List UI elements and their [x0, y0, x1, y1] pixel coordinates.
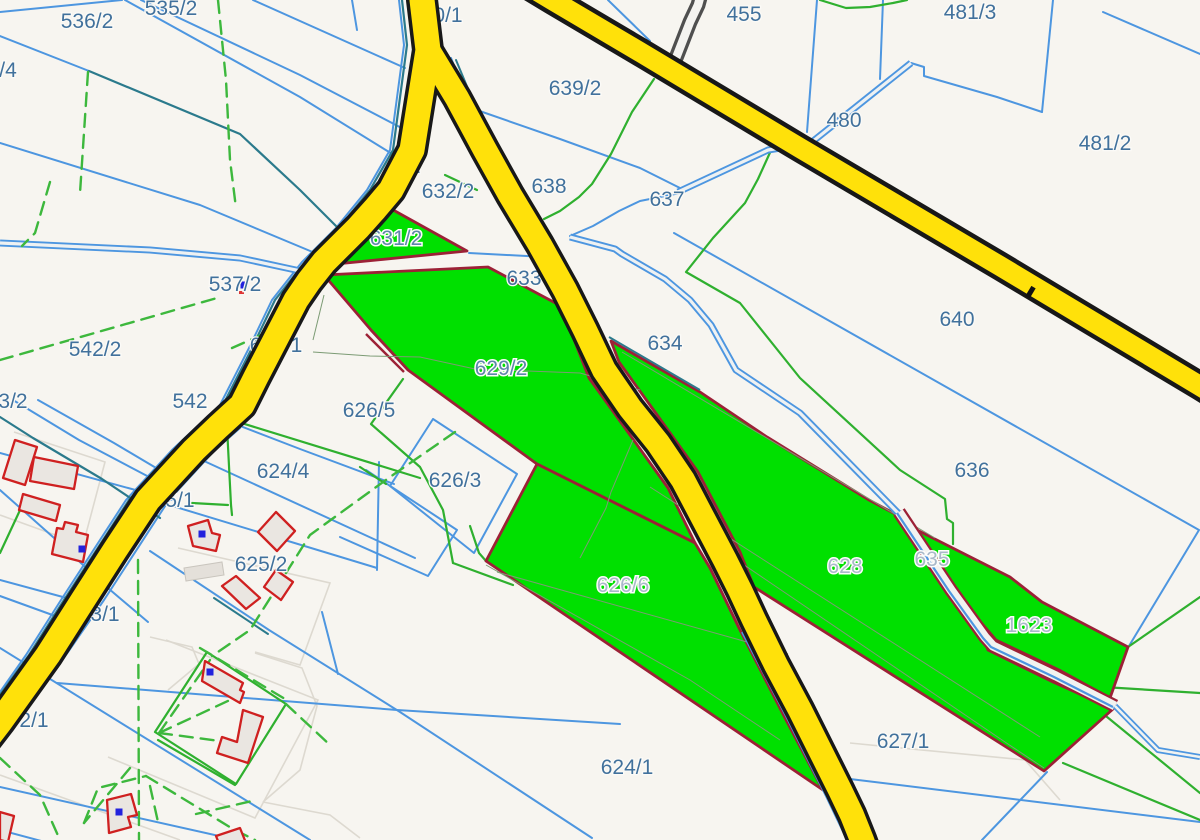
svg-text:640: 640 [939, 308, 974, 331]
svg-text:632/2: 632/2 [422, 180, 475, 203]
svg-text:629/2: 629/2 [475, 357, 528, 380]
svg-text:1623: 1623 [1006, 614, 1053, 637]
svg-text:635: 635 [914, 548, 949, 571]
svg-text:/4: /4 [0, 59, 17, 82]
svg-text:637: 637 [649, 188, 684, 211]
svg-text:481/2: 481/2 [1079, 132, 1132, 155]
svg-text:626/5: 626/5 [343, 399, 396, 422]
svg-text:626/3: 626/3 [429, 469, 482, 492]
svg-text:638: 638 [531, 175, 566, 198]
svg-text:542/2: 542/2 [69, 338, 122, 361]
svg-text:455: 455 [726, 3, 761, 26]
svg-text:536/2: 536/2 [61, 10, 114, 33]
svg-text:542: 542 [172, 390, 207, 413]
svg-text:631/2: 631/2 [370, 227, 423, 250]
svg-text:627/1: 627/1 [877, 730, 930, 753]
svg-text:535/2: 535/2 [145, 0, 198, 20]
svg-text:634: 634 [647, 332, 682, 355]
svg-text:3/2: 3/2 [0, 390, 28, 413]
svg-text:639/2: 639/2 [549, 77, 602, 100]
svg-text:480: 480 [826, 109, 861, 132]
svg-text:481/3: 481/3 [944, 1, 997, 24]
svg-text:628: 628 [827, 555, 862, 578]
svg-text:624/4: 624/4 [257, 460, 310, 483]
svg-text:537/2: 537/2 [209, 273, 262, 296]
svg-text:636: 636 [954, 459, 989, 482]
svg-text:624/1: 624/1 [601, 756, 654, 779]
svg-text:633: 633 [506, 267, 541, 290]
svg-text:626/6: 626/6 [597, 574, 650, 597]
svg-text:625/2: 625/2 [235, 553, 288, 576]
